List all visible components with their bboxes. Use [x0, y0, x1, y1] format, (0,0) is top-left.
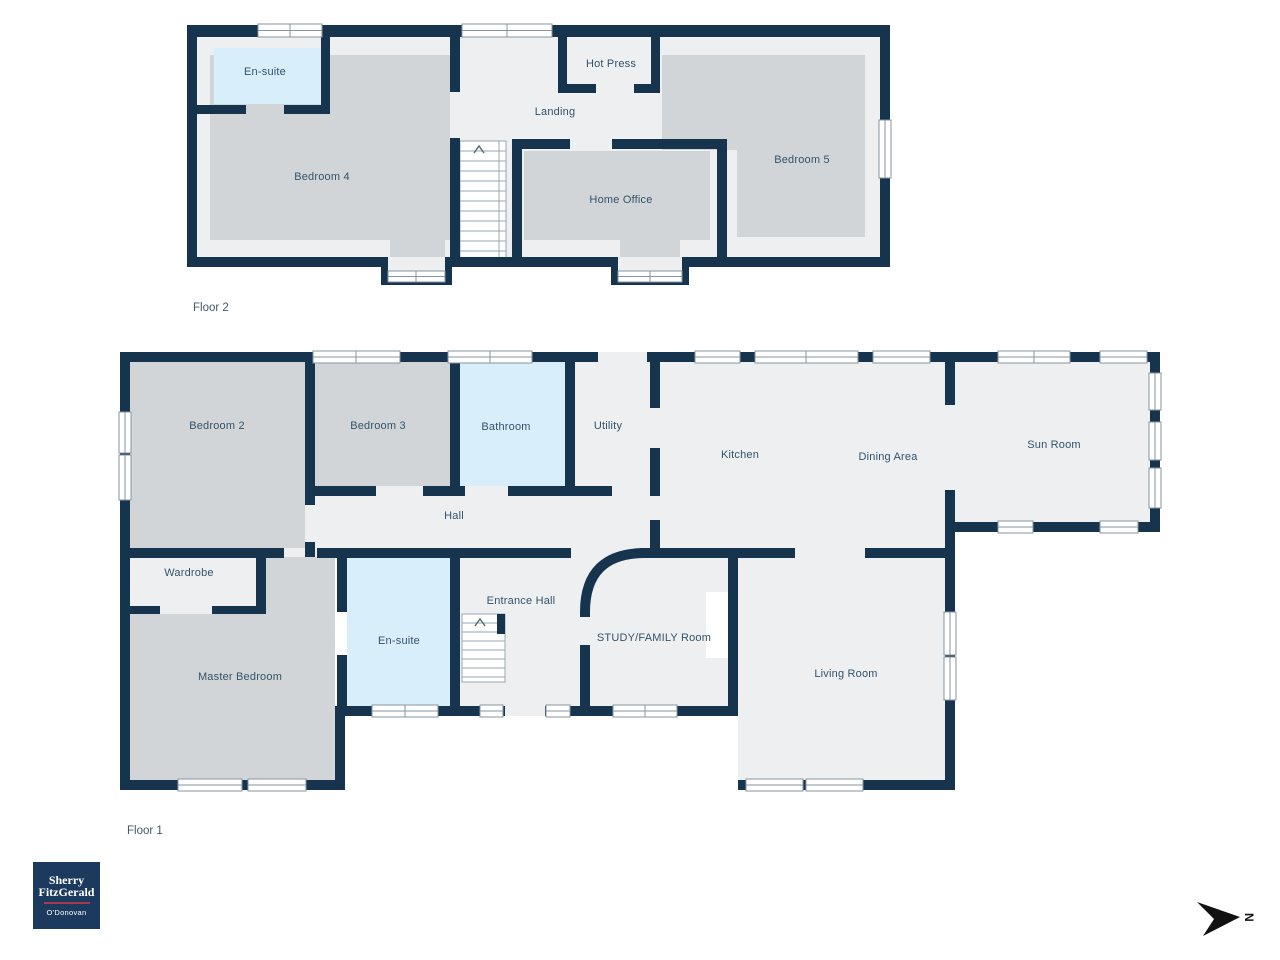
agency-logo-rule [44, 902, 90, 904]
agency-logo-line2: FitzGerald [39, 886, 95, 899]
floor1-plan [115, 348, 1165, 796]
room-label-home-office: Home Office [589, 194, 652, 206]
room-label-bedroom3: Bedroom 3 [350, 420, 406, 432]
room-label-bedroom2: Bedroom 2 [189, 420, 245, 432]
north-arrow-icon: N [1190, 895, 1265, 945]
room-label-bedroom5: Bedroom 5 [774, 154, 830, 166]
floor1-stairs [462, 614, 505, 682]
room-label-dining-area: Dining Area [858, 451, 917, 463]
room-label-landing: Landing [535, 106, 576, 118]
room-label-ensuite-f2: En-suite [244, 66, 286, 78]
agency-logo-line3: O'Donovan [47, 908, 87, 917]
room-label-living-room: Living Room [814, 668, 877, 680]
room-label-entrance-hall: Entrance Hall [487, 595, 556, 607]
room-label-kitchen: Kitchen [721, 449, 759, 461]
room-label-master-bedroom: Master Bedroom [198, 671, 282, 683]
floor1-caption: Floor 1 [127, 825, 163, 837]
floor2-caption: Floor 2 [193, 302, 229, 314]
room-label-sun-room: Sun Room [1027, 439, 1081, 451]
floor2-stairs [460, 141, 506, 262]
north-label: N [1242, 913, 1256, 922]
room-label-utility: Utility [594, 420, 622, 432]
room-label-ensuite-f1: En-suite [378, 635, 420, 647]
room-label-bedroom4: Bedroom 4 [294, 171, 350, 183]
floorplan-page: En-suite Bedroom 4 Hot Press Landing Hom… [0, 0, 1280, 960]
room-label-hot-press: Hot Press [586, 58, 636, 70]
agency-logo: Sherry FitzGerald O'Donovan [33, 862, 100, 929]
room-label-hall: Hall [444, 510, 464, 522]
room-label-wardrobe: Wardrobe [164, 567, 214, 579]
room-label-bathroom: Bathroom [481, 421, 530, 433]
room-label-study-family: STUDY/FAMILY Room [597, 632, 711, 644]
